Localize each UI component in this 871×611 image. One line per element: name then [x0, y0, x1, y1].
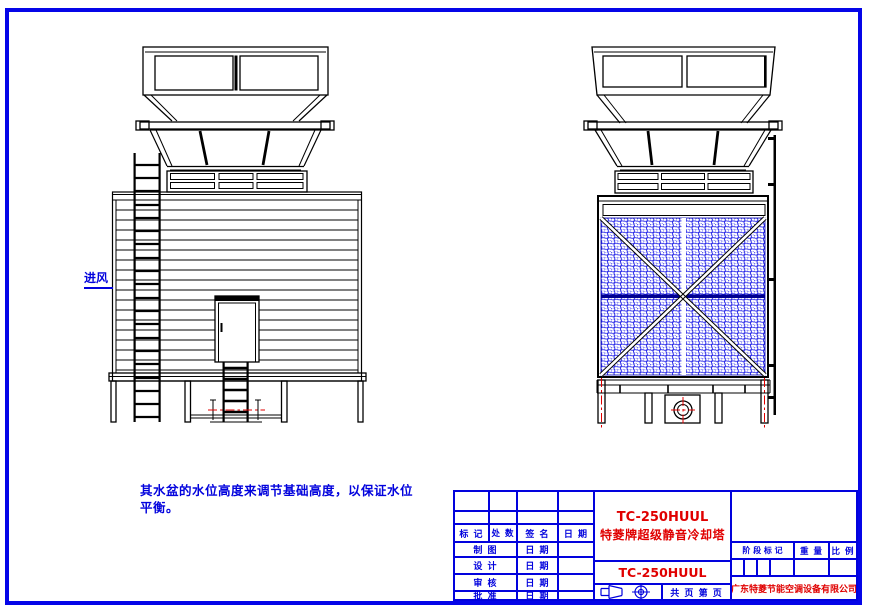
left-access-door: [215, 296, 259, 362]
right-fan-casing: [595, 130, 771, 170]
air-inlet-label: 进风: [84, 269, 113, 289]
product-model: TC-250HUUL: [617, 510, 709, 525]
company-name: 广东特菱节能空调设备有限公司: [731, 582, 857, 595]
left-view: [109, 47, 366, 422]
col-header-signature: 签 名: [516, 523, 559, 543]
rev-cell: [453, 490, 490, 512]
row-approved-label: 批 准: [453, 590, 518, 601]
left-louver-boxes: [167, 171, 307, 192]
col-header-date: 日 期: [557, 523, 595, 543]
row-approved-value: [557, 590, 595, 601]
right-side-ladder: [768, 135, 776, 415]
projection-symbol-icon: [599, 584, 657, 600]
right-louver-boxes: [615, 171, 753, 193]
left-fan-casing: [150, 130, 321, 170]
projection-symbol-cell: [593, 583, 663, 601]
right-body: [598, 196, 768, 377]
model-repeat: TC-250HUUL: [619, 565, 707, 580]
note-line-1: 其水盆的水位高度来调节基础高度，以保证水位: [140, 480, 413, 499]
col-header-mark: 标 记: [453, 523, 490, 543]
left-center-ladder: [210, 362, 262, 422]
row-approved-date: 日 期: [516, 590, 559, 601]
left-fan-cowl: [136, 47, 334, 130]
right-empty-box: [730, 490, 858, 543]
right-fan-cowl: [584, 47, 782, 130]
right-base: [597, 378, 770, 428]
drawing-sheet: 进风 其水盆的水位高度来调节基础高度，以保证水位 平衡。 标 记 处 数 签 名…: [0, 0, 871, 611]
rev-cell: [557, 490, 595, 512]
col-header-count: 处 数: [488, 523, 518, 543]
right-view: [584, 47, 782, 428]
model-box: TC-250HUUL: [593, 560, 732, 585]
note-line-2: 平衡。: [140, 497, 179, 516]
title-block: 标 记 处 数 签 名 日 期 制 图 日 期 设 计 日 期 审 核 日 期 …: [453, 490, 858, 601]
product-title-box: TC-250HUUL 特菱牌超级静音冷却塔: [593, 490, 732, 562]
sheet-info-cell: 共 页 第 页: [661, 583, 732, 601]
rev-cell: [516, 490, 559, 512]
company-box: 广东特菱节能空调设备有限公司: [730, 575, 858, 601]
rev-cell: [488, 490, 518, 512]
product-name: 特菱牌超级静音冷却塔: [600, 526, 725, 543]
